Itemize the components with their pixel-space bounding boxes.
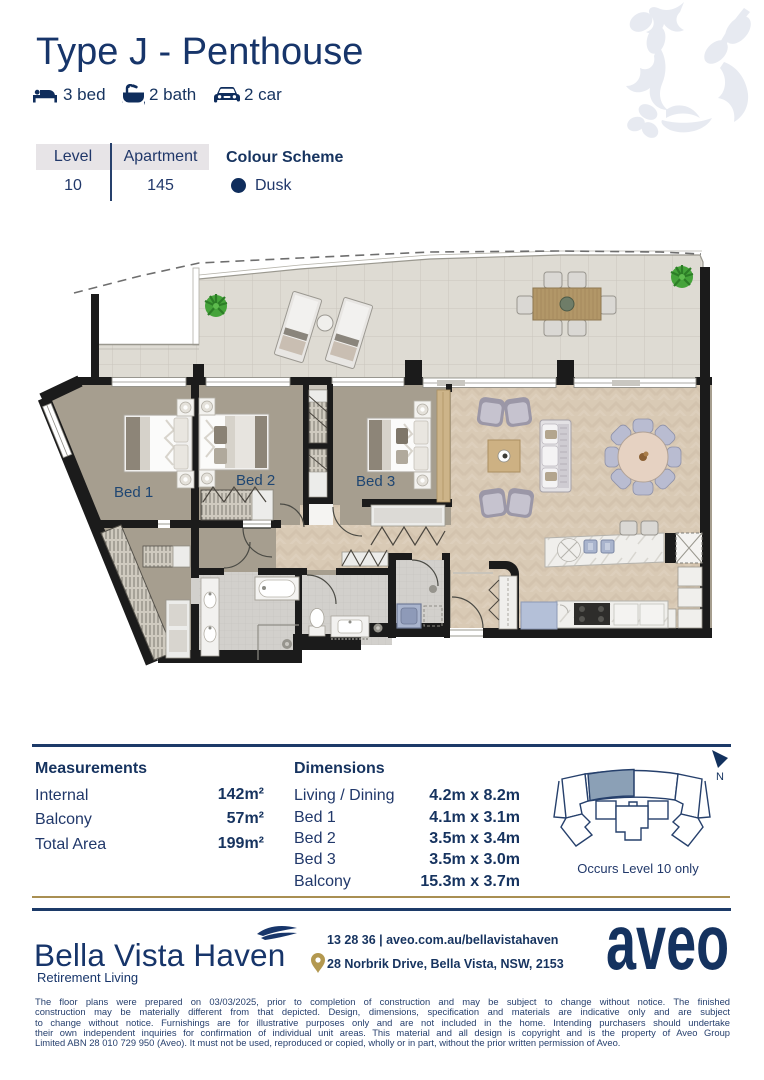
svg-text:Bed 3: Bed 3: [356, 473, 395, 490]
svg-text:Bed 2: Bed 2: [236, 472, 275, 489]
svg-text:Bed 1: Bed 1: [114, 484, 153, 501]
svg-text:N: N: [716, 771, 724, 783]
